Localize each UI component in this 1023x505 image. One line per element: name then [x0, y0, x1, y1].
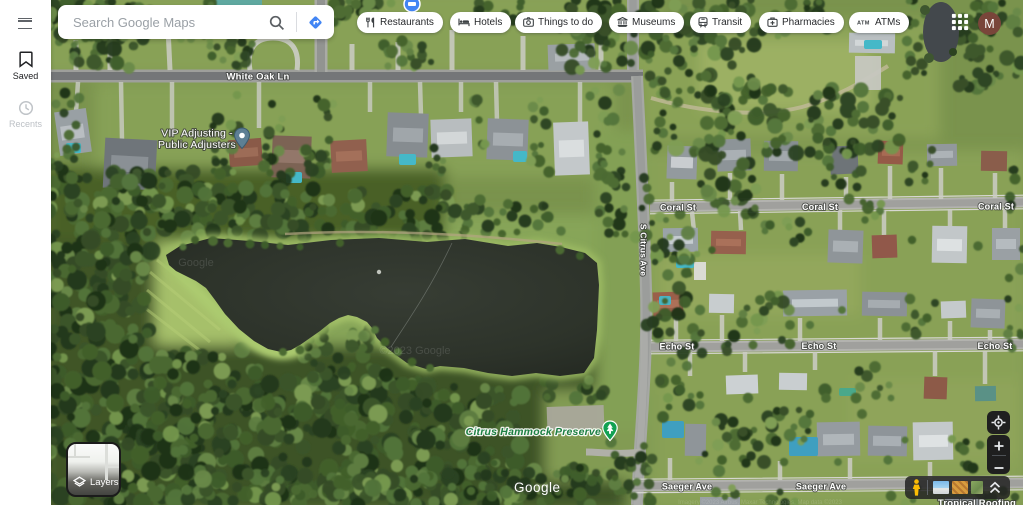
- svg-text:Imagery ©2023 Airbus, Maxar Te: Imagery ©2023 Airbus, Maxar Technologies…: [678, 499, 842, 505]
- svg-text:Coral St: Coral St: [802, 202, 838, 212]
- svg-text:Citrus Hammock Preserve: Citrus Hammock Preserve: [466, 426, 601, 438]
- svg-text:Echo St: Echo St: [978, 341, 1013, 351]
- svg-text:Saeger Ave: Saeger Ave: [796, 482, 846, 492]
- svg-text:VIP Adjusting -: VIP Adjusting -: [161, 128, 233, 140]
- svg-text:©2023 Google: ©2023 Google: [379, 345, 450, 357]
- svg-text:Tropical Roofing: Tropical Roofing: [938, 498, 1016, 505]
- svg-text:Coral St: Coral St: [660, 203, 696, 213]
- svg-text:Echo St: Echo St: [802, 341, 837, 351]
- svg-text:Public Adjusters: Public Adjusters: [158, 139, 236, 151]
- svg-text:Coral St: Coral St: [978, 202, 1014, 212]
- svg-text:S Citrus Ave: S Citrus Ave: [639, 224, 649, 276]
- svg-text:Echo St: Echo St: [660, 342, 695, 352]
- svg-text:White Oak Ln: White Oak Ln: [226, 72, 289, 83]
- svg-text:Google: Google: [178, 257, 213, 269]
- svg-text:ATM: ATM: [857, 21, 870, 26]
- svg-text:Saeger Ave: Saeger Ave: [662, 482, 712, 492]
